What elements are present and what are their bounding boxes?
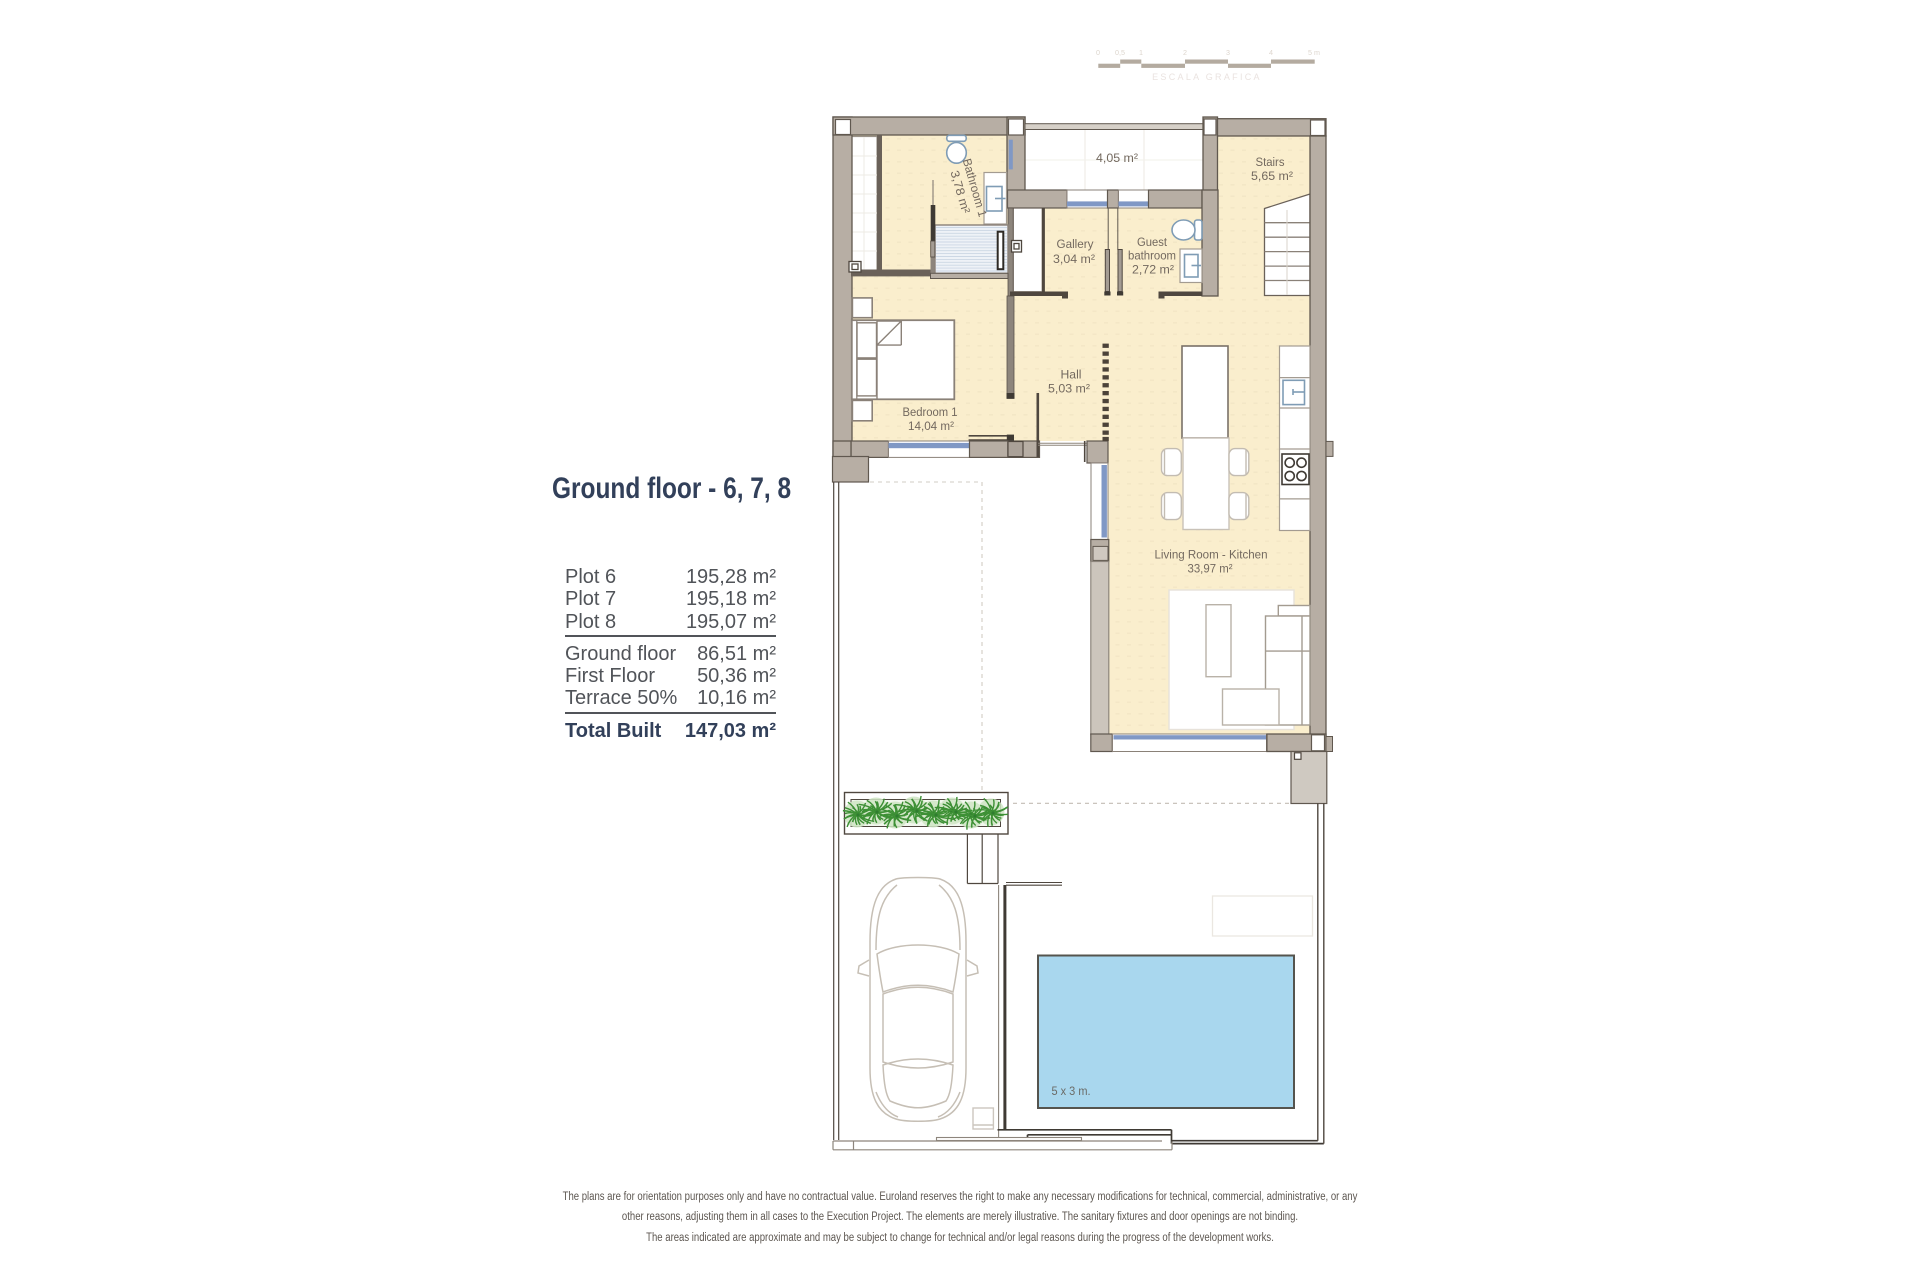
svg-text:3: 3 <box>1226 48 1230 57</box>
svg-text:3,04 m²: 3,04 m² <box>1053 252 1095 266</box>
svg-text:Stairs: Stairs <box>1256 155 1285 169</box>
svg-text:Guest: Guest <box>1137 235 1168 249</box>
svg-text:Gallery: Gallery <box>1057 237 1095 251</box>
svg-text:4,05 m²: 4,05 m² <box>1096 151 1138 165</box>
svg-text:0: 0 <box>1096 48 1100 57</box>
svg-text:5,03 m²: 5,03 m² <box>1048 382 1090 396</box>
svg-text:14,04 m²: 14,04 m² <box>908 419 954 433</box>
svg-text:Bedroom 1: Bedroom 1 <box>903 405 958 419</box>
svg-text:33,97 m²: 33,97 m² <box>1188 562 1233 576</box>
svg-text:1: 1 <box>1139 48 1143 57</box>
svg-text:ESCALA GRAFICA: ESCALA GRAFICA <box>1152 72 1262 82</box>
svg-text:2: 2 <box>1183 48 1187 57</box>
svg-text:5 x 3 m.: 5 x 3 m. <box>1052 1084 1091 1098</box>
svg-text:Hall: Hall <box>1061 368 1082 382</box>
svg-text:5,65 m²: 5,65 m² <box>1251 169 1293 183</box>
svg-text:4: 4 <box>1269 48 1273 57</box>
svg-text:5 m: 5 m <box>1308 48 1320 57</box>
svg-text:0,5: 0,5 <box>1115 48 1125 57</box>
svg-text:bathroom: bathroom <box>1128 249 1176 263</box>
svg-text:Living Room - Kitchen: Living Room - Kitchen <box>1155 548 1268 562</box>
svg-text:2,72 m²: 2,72 m² <box>1132 263 1174 277</box>
